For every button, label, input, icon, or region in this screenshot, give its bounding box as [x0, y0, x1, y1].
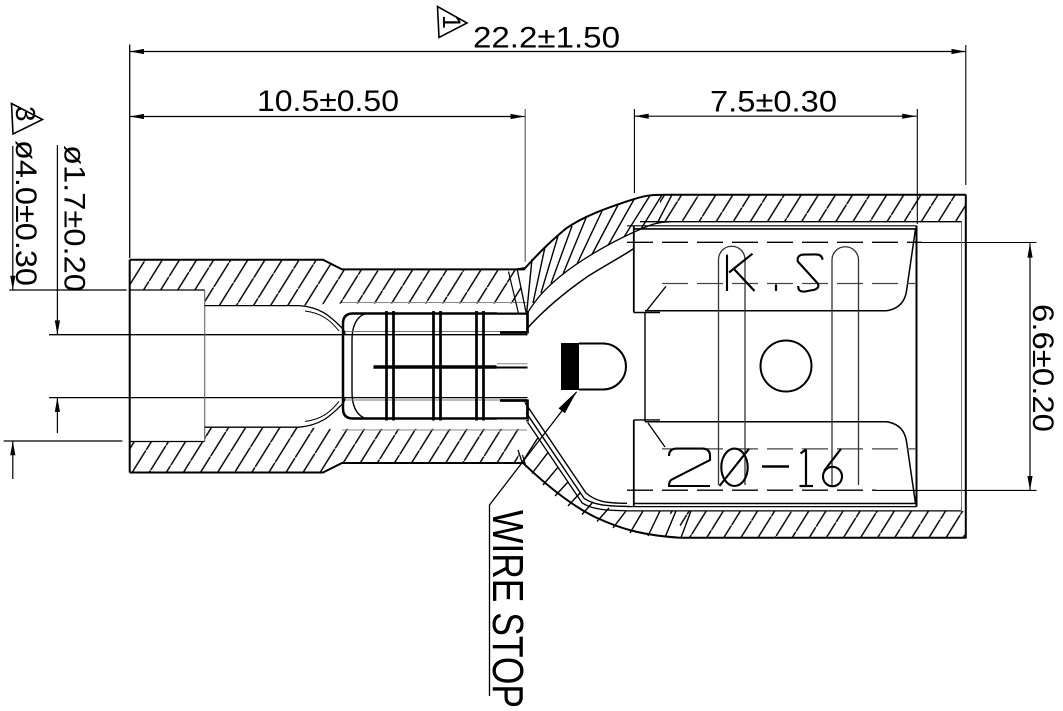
svg-text:ø1.7±0.20: ø1.7±0.20 — [58, 145, 91, 292]
svg-text:1: 1 — [437, 15, 465, 29]
svg-text:7.5±0.30: 7.5±0.30 — [710, 86, 837, 119]
svg-text:6.6±0.20: 6.6±0.20 — [1026, 304, 1059, 432]
svg-text:ø4.0±0.30: ø4.0±0.30 — [9, 140, 42, 286]
svg-text:10.5±0.50: 10.5±0.50 — [257, 85, 399, 118]
svg-text:3: 3 — [10, 106, 41, 122]
svg-text:22.2±1.50: 22.2±1.50 — [473, 22, 620, 55]
svg-text:WIRE STOP: WIRE STOP — [483, 510, 532, 708]
